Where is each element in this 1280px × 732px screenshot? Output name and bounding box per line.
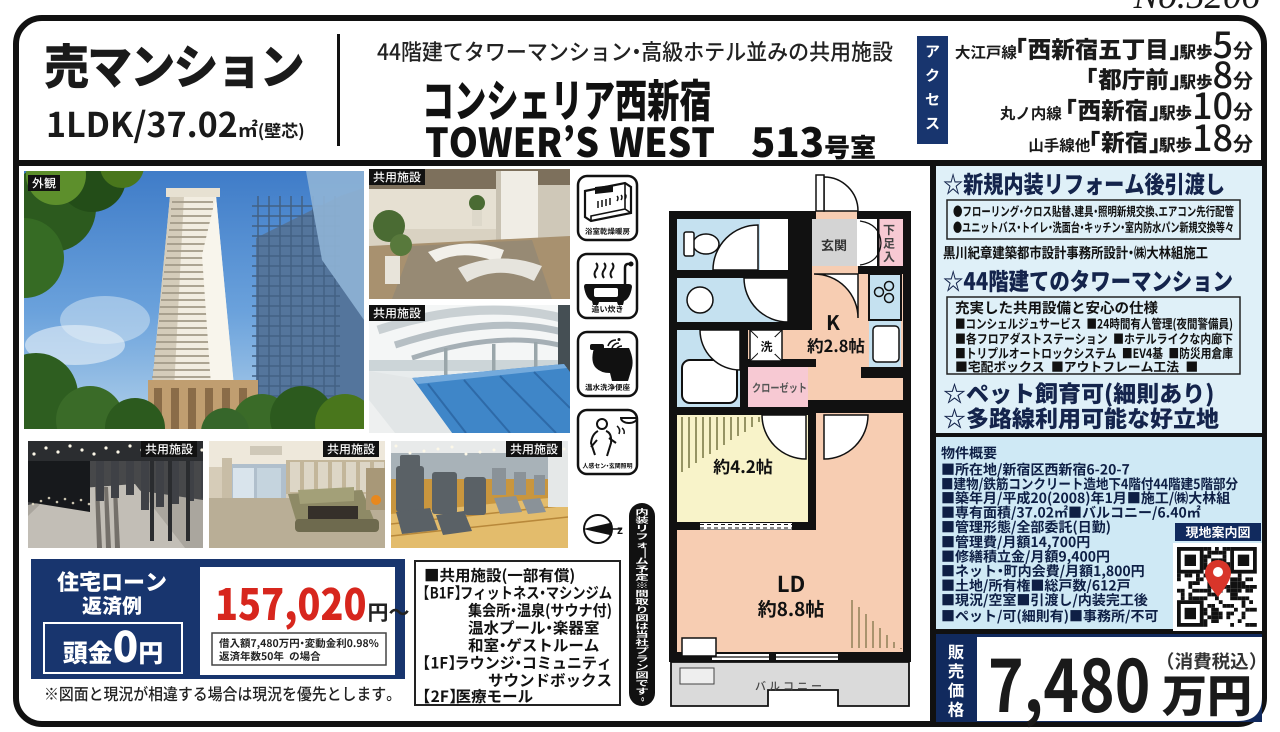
svg-text:z: z (617, 523, 623, 537)
svg-text:No.5206: No.5206 (1133, 0, 1261, 17)
